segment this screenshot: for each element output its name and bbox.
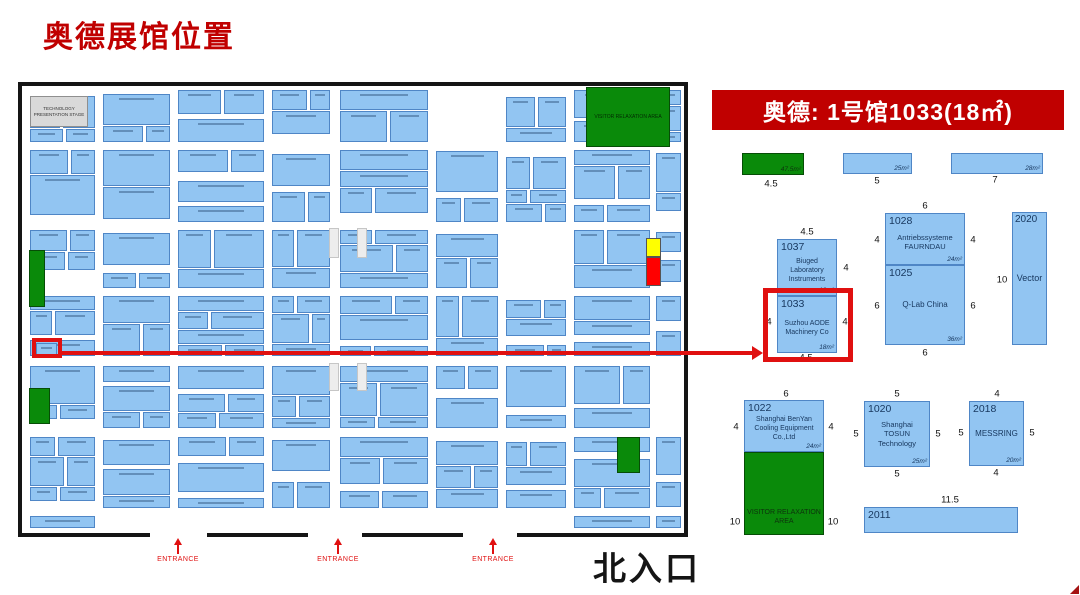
dim-label: 4: [843, 263, 848, 274]
dim-label: 6: [783, 389, 788, 400]
yellow-booth-marker: [646, 238, 661, 257]
dim-label: 5: [894, 389, 899, 400]
dim-label: 11.5: [941, 495, 959, 506]
technology-presentation-stage: TECHNOLOGY PRESENTATION STAGE: [30, 96, 88, 127]
locator-arrow-line: [58, 351, 756, 355]
arrow-stem: [337, 545, 339, 554]
dim-label: 5: [894, 469, 899, 480]
dim-label: 4: [733, 422, 738, 433]
dim-label: 4.5: [800, 227, 813, 238]
red-booth-marker: [646, 257, 661, 286]
locator-arrowhead-icon: [752, 346, 763, 360]
floor-map-overlays: TECHNOLOGY PRESENTATION STAGE VISITOR RE…: [0, 0, 1080, 595]
stage-label: TECHNOLOGY PRESENTATION STAGE: [31, 106, 87, 117]
up-arrow-icon: [174, 538, 182, 545]
dim-label: 5: [1029, 428, 1034, 439]
dim-label: 10: [997, 275, 1008, 286]
dim-label: 4: [970, 235, 975, 246]
entrance-1: ENTRANCE: [148, 538, 208, 563]
up-arrow-icon: [334, 538, 342, 545]
dim-label: 6: [874, 301, 879, 312]
dim-label: 4: [842, 317, 847, 328]
dim-label: 5: [853, 429, 858, 440]
dim-label: 4: [874, 235, 879, 246]
dim-label: 6: [970, 301, 975, 312]
dim-label: 4: [994, 389, 999, 400]
visitor-relaxation-area-map: VISITOR RELAXATION AREA: [586, 87, 670, 147]
slide-canvas: 奥德展馆位置 TECHNOLOGY PRESENTATION STAGE VIS…: [0, 0, 1080, 595]
dim-label: 6: [922, 201, 927, 212]
dim-label: 4: [766, 317, 771, 328]
dim-label: 10: [730, 517, 741, 528]
dim-label: 4.5: [764, 179, 777, 190]
dim-label: 6: [922, 348, 927, 359]
dim-label: 10: [828, 517, 839, 528]
entrance-label: ENTRANCE: [463, 556, 523, 563]
up-arrow-icon: [489, 538, 497, 545]
relax-label: VISITOR RELAXATION AREA: [594, 114, 661, 120]
pillar: [357, 363, 367, 391]
aode-booth-on-map: [36, 343, 57, 355]
pillar: [329, 228, 339, 258]
dim-label: 5: [935, 429, 940, 440]
pillar: [329, 363, 339, 391]
green-area-left: [29, 250, 45, 307]
dim-label: 4.5: [799, 353, 812, 364]
arrow-stem: [492, 545, 494, 554]
green-area-bottom-left: [29, 388, 50, 424]
arrow-stem: [177, 545, 179, 554]
pillar: [357, 228, 367, 258]
dim-label: 7: [992, 175, 997, 186]
dim-label: 4: [993, 468, 998, 479]
entrance-2: ENTRANCE: [308, 538, 368, 563]
entrance-label: ENTRANCE: [148, 556, 208, 563]
green-area-mid-right: [617, 437, 640, 473]
entrance-label: ENTRANCE: [308, 556, 368, 563]
entrance-3: ENTRANCE: [463, 538, 523, 563]
dim-label: 5: [958, 428, 963, 439]
dim-label: 5: [874, 176, 879, 187]
dim-label: 4: [828, 422, 833, 433]
